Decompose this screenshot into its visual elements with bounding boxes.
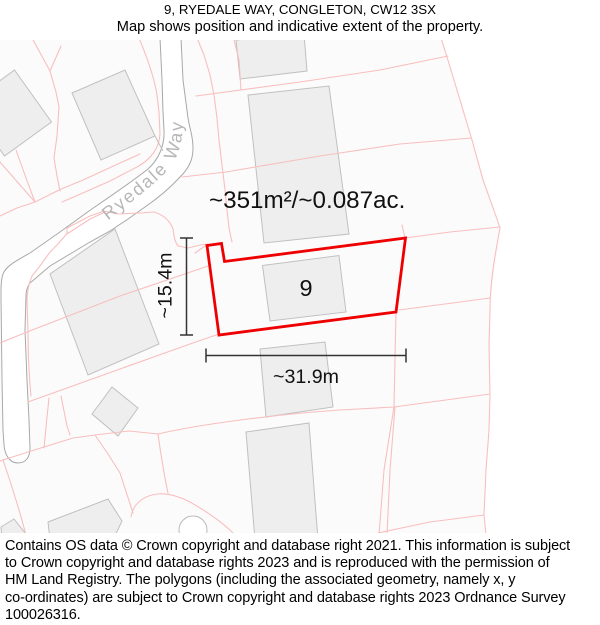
svg-text:9: 9 bbox=[299, 275, 312, 301]
svg-text:~15.4m: ~15.4m bbox=[155, 253, 177, 319]
svg-text:~31.9m: ~31.9m bbox=[273, 366, 339, 388]
svg-text:~351m²/~0.087ac.: ~351m²/~0.087ac. bbox=[209, 187, 405, 214]
